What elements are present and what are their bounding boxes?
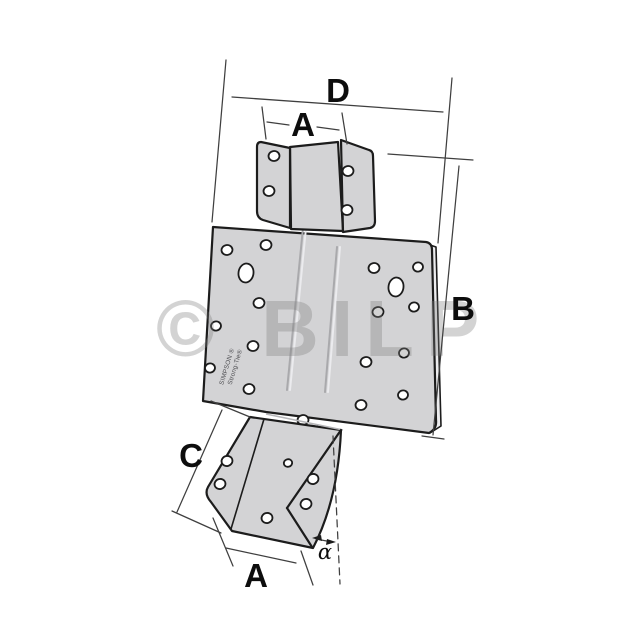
hole	[263, 185, 276, 197]
hole	[243, 383, 256, 395]
dimension-label-a-top: A	[291, 106, 315, 143]
hole	[397, 390, 408, 401]
dimension-label-b: B	[451, 290, 475, 327]
dimension-label-a-bottom: A	[244, 557, 268, 594]
hole	[260, 239, 273, 251]
hole	[355, 399, 368, 411]
hole	[412, 262, 423, 273]
hole	[221, 244, 234, 256]
dimension-label-alpha: α	[318, 540, 332, 564]
connector-technical-drawing: SIMPSON ® Strong-Tie®	[0, 0, 640, 640]
hole	[341, 204, 354, 216]
hole	[342, 165, 355, 177]
product-diagram-image: SIMPSON ® Strong-Tie®	[0, 0, 640, 640]
top-web	[290, 142, 343, 231]
watermark-text: © BILP	[156, 284, 491, 373]
hole	[368, 262, 381, 274]
dimension-label-c: C	[179, 437, 203, 474]
hole	[268, 150, 281, 162]
top-right-flange	[341, 140, 375, 232]
dimension-label-d: D	[326, 72, 350, 109]
